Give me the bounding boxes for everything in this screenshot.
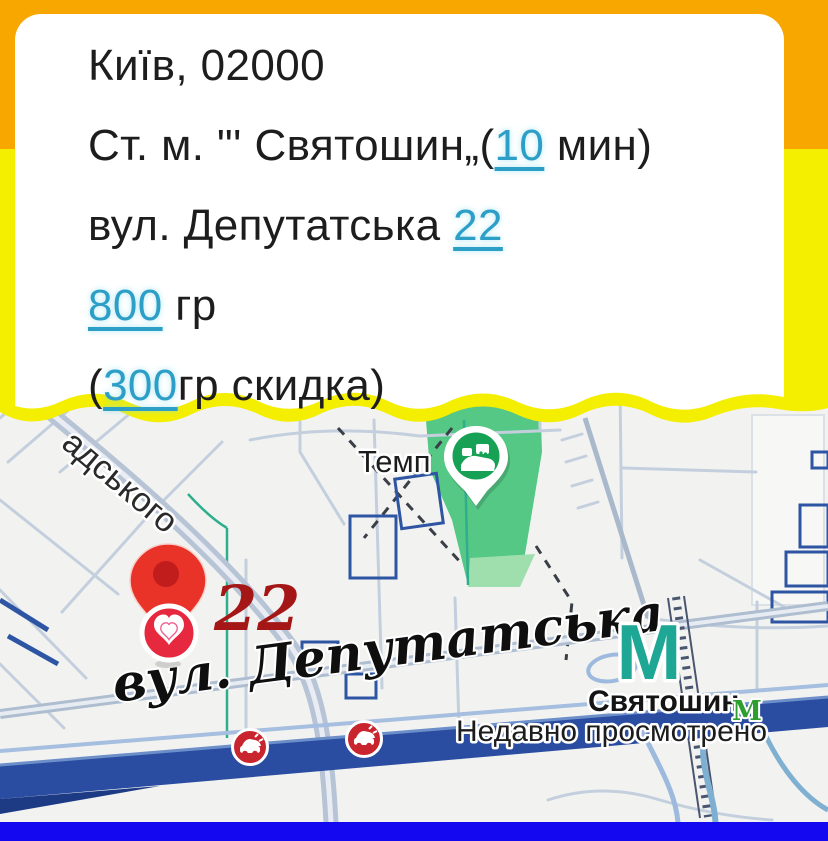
address-prefix-text: вул. Депутатська <box>88 201 453 251</box>
ad-line-city: Київ, 02000 <box>88 26 784 106</box>
city-text: Київ, 02000 <box>88 41 325 91</box>
ad-line-price: 800 гр <box>88 266 784 346</box>
house-number-link[interactable]: 22 <box>453 201 503 251</box>
map-block <box>752 415 824 605</box>
discount-prefix-text: ( <box>88 361 103 411</box>
metro-m-label[interactable]: М <box>617 608 682 696</box>
discount-suffix-text: гр скидка) <box>178 361 386 411</box>
metro-suffix-text: мин) <box>544 121 652 171</box>
map[interactable]: адського Темп вул. Депутатська 22 М Свят… <box>0 378 828 841</box>
price-link[interactable]: 800 <box>88 281 163 331</box>
bottom-blue-stripe <box>0 822 828 841</box>
poi-label-temp: Темп <box>358 444 431 479</box>
minutes-link[interactable]: 10 <box>495 121 545 171</box>
metro-station-label: Святошин <box>588 685 739 718</box>
discount-link[interactable]: 300 <box>103 361 178 411</box>
screenshot-root: адського Темп вул. Депутатська 22 М Свят… <box>0 0 828 841</box>
car-service-icon[interactable] <box>233 730 268 765</box>
ad-line-discount: (300гр скидка) <box>88 346 784 426</box>
car-service-icon[interactable] <box>347 722 382 757</box>
ad-text-block: Київ, 02000 Ст. м. "' Святошин„(10 мин) … <box>15 14 784 426</box>
ad-line-address: вул. Депутатська 22 <box>88 186 784 266</box>
heart-badge-icon <box>142 606 196 660</box>
metro-prefix-text: Ст. м. "' Святошин„( <box>88 121 495 171</box>
house-number-label: 22 <box>213 572 300 645</box>
ad-line-metro: Ст. м. "' Святошин„(10 мин) <box>88 106 784 186</box>
price-suffix-text: гр <box>163 281 217 331</box>
recently-viewed-label: Недавно просмотрено <box>456 715 767 748</box>
